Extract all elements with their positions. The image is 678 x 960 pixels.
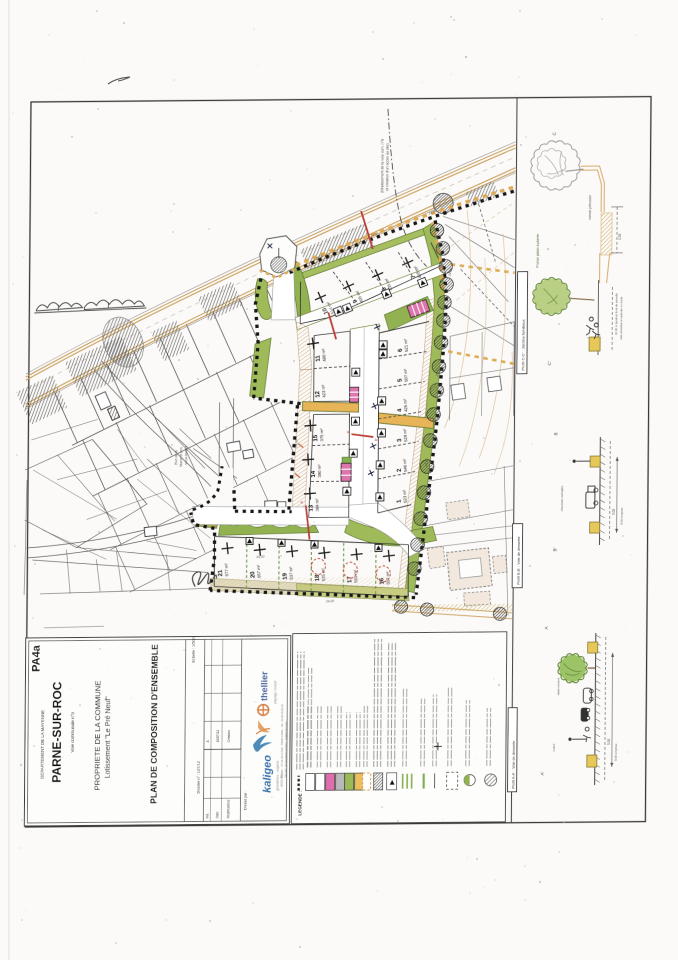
svg-text:525 m²: 525 m² [320, 567, 326, 581]
svg-text:Création: Création [227, 730, 231, 742]
svg-text:PARNE-SUR-ROC: PARNE-SUR-ROC [50, 681, 65, 783]
svg-text:24.00: 24.00 [325, 599, 334, 603]
svg-text:PROPRIETE DE LA COMMUNE: PROPRIETE DE LA COMMUNE [93, 681, 103, 791]
svg-text:24.00: 24.00 [435, 368, 440, 377]
svg-text:Echelle : 1/500: Echelle : 1/500 [192, 637, 196, 662]
svg-text:LEGENDE :: LEGENDE : [297, 790, 302, 816]
svg-text:390 m²: 390 m² [317, 464, 322, 478]
svg-text:Lotissement "Le Pré Neuf": Lotissement "Le Pré Neuf" [105, 696, 113, 779]
svg-text:Kaligéo - 12 rue de la Paix -: Kaligéo - 12 rue de la Paix - 53000 LAVA… [280, 704, 285, 778]
svg-text:Profil C-C' : Jardins familiau: Profil C-C' : Jardins familiaux [520, 319, 525, 370]
svg-text:A': A' [540, 771, 545, 775]
svg-text:chaussée partagée: chaussée partagée [560, 485, 564, 511]
svg-text:vieux lavoirs: vieux lavoirs [184, 446, 188, 465]
svg-text:10.00 m (jardins) fond de parc: 10.00 m (jardins) fond de parcelle [614, 293, 618, 335]
svg-text:Voie communale n°9: Voie communale n°9 [70, 712, 75, 753]
svg-text:B': B' [374, 438, 378, 441]
svg-text:haie arbustive à implanter en: haie arbustive à implanter en limite [619, 296, 623, 340]
svg-text:B: B [553, 432, 558, 435]
svg-text:24.00: 24.00 [424, 458, 429, 467]
svg-text:1.50: 1.50 [618, 233, 622, 239]
svg-text:24.00: 24.00 [294, 439, 298, 448]
svg-text:stationnement: stationnement [556, 678, 560, 696]
svg-text:kaligeo: kaligeo [262, 755, 274, 793]
svg-text:chemin piétonnier: chemin piétonnier [588, 194, 592, 220]
svg-text:8.00 emprise: 8.00 emprise [620, 507, 624, 525]
svg-text:Prunus padus à planter: Prunus padus à planter [536, 233, 540, 268]
svg-text:thellier: thellier [259, 671, 269, 701]
svg-text:Dossier n° : L07/12: Dossier n° : L07/12 [197, 761, 201, 793]
svg-text:PLAN DE COMPOSITION D'ENSEMBLE: PLAN DE COMPOSITION D'ENSEMBLE [148, 644, 159, 804]
svg-text:Date: Date [215, 811, 219, 818]
svg-text:375 m²: 375 m² [319, 428, 324, 442]
svg-text:B': B' [552, 547, 557, 551]
svg-text:C': C' [547, 361, 552, 365]
svg-text:PA4a: PA4a [31, 644, 43, 672]
svg-text:DEPARTEMENT DE LA MAYENNE: DEPARTEMENT DE LA MAYENNE [40, 710, 46, 779]
svg-text:10/07/12: 10/07/12 [216, 730, 220, 743]
svg-text:paysage conseil: paysage conseil [273, 681, 277, 704]
svg-text:SELARL de géomètres experts -: SELARL de géomètres experts - thellier p… [284, 721, 288, 778]
svg-text:5.00: 5.00 [607, 738, 611, 744]
svg-text:384 m²: 384 m² [314, 498, 319, 512]
svg-text:Modifications: Modifications [226, 799, 230, 818]
svg-text:Mairie et des: Mairie et des [179, 447, 183, 467]
svg-text:et création d'un accès au site: et création d'un accès au site) [385, 143, 389, 191]
svg-text:Rue de la: Rue de la [174, 450, 178, 465]
svg-text:A: A [544, 626, 549, 629]
svg-text:8.00 emprise: 8.00 emprise [614, 743, 618, 761]
svg-text:Profil A-A' : Voie de desserte: Profil A-A' : Voie de desserte [512, 741, 516, 789]
svg-text:(Déplacement de la voie com. n: (Déplacement de la voie com. n°9 [380, 139, 384, 193]
svg-text:Ind.: Ind. [205, 813, 209, 818]
svg-text:557 m²: 557 m² [256, 564, 262, 578]
svg-text:5.00: 5.00 [612, 508, 616, 514]
svg-text:24.00: 24.00 [255, 555, 264, 559]
svg-text:537 m²: 537 m² [288, 566, 294, 580]
svg-text:Dressé par :: Dressé par : [243, 790, 247, 810]
svg-text:Profil B-B' : Voie de desserte: Profil B-B' : Voie de desserte [517, 536, 521, 584]
svg-text:trottoir: trottoir [552, 743, 556, 751]
svg-text:507 m²: 507 m² [385, 571, 391, 585]
svg-text:577 m²: 577 m² [223, 563, 229, 577]
